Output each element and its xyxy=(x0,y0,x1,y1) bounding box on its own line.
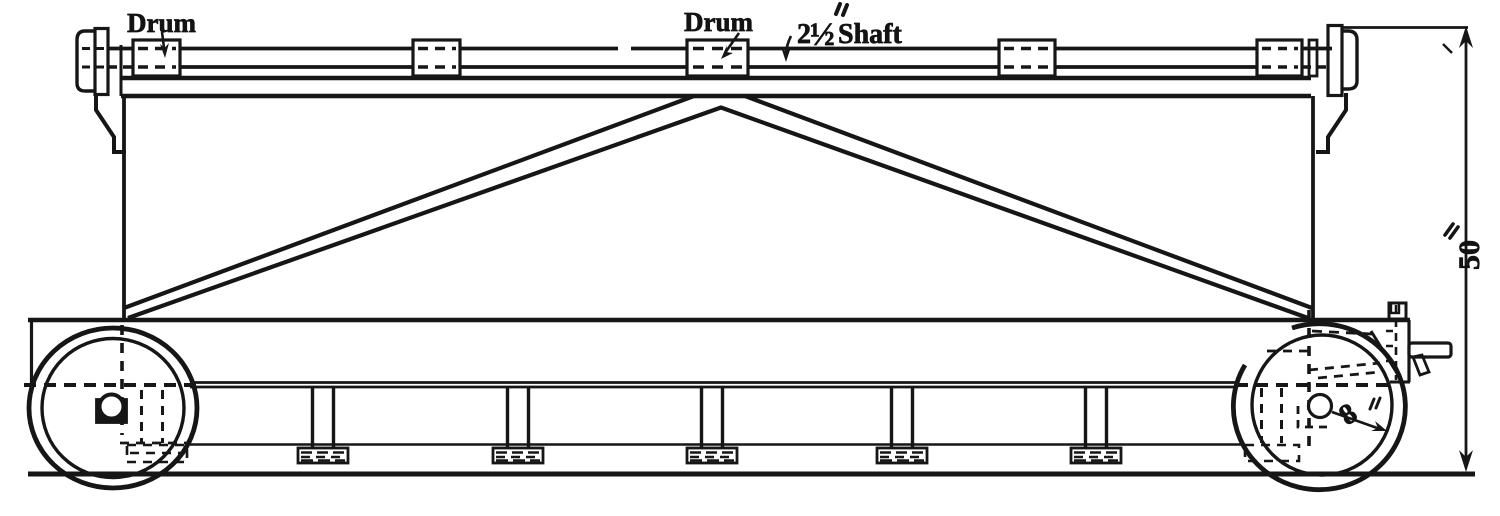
svg-text:50: 50 xyxy=(1453,240,1486,270)
svg-text:½: ½ xyxy=(810,17,835,53)
svg-text:2: 2 xyxy=(797,19,811,50)
svg-text:Shaft: Shaft xyxy=(838,19,902,50)
svg-text:Drum: Drum xyxy=(684,7,753,37)
svg-text:Drum: Drum xyxy=(127,8,196,38)
